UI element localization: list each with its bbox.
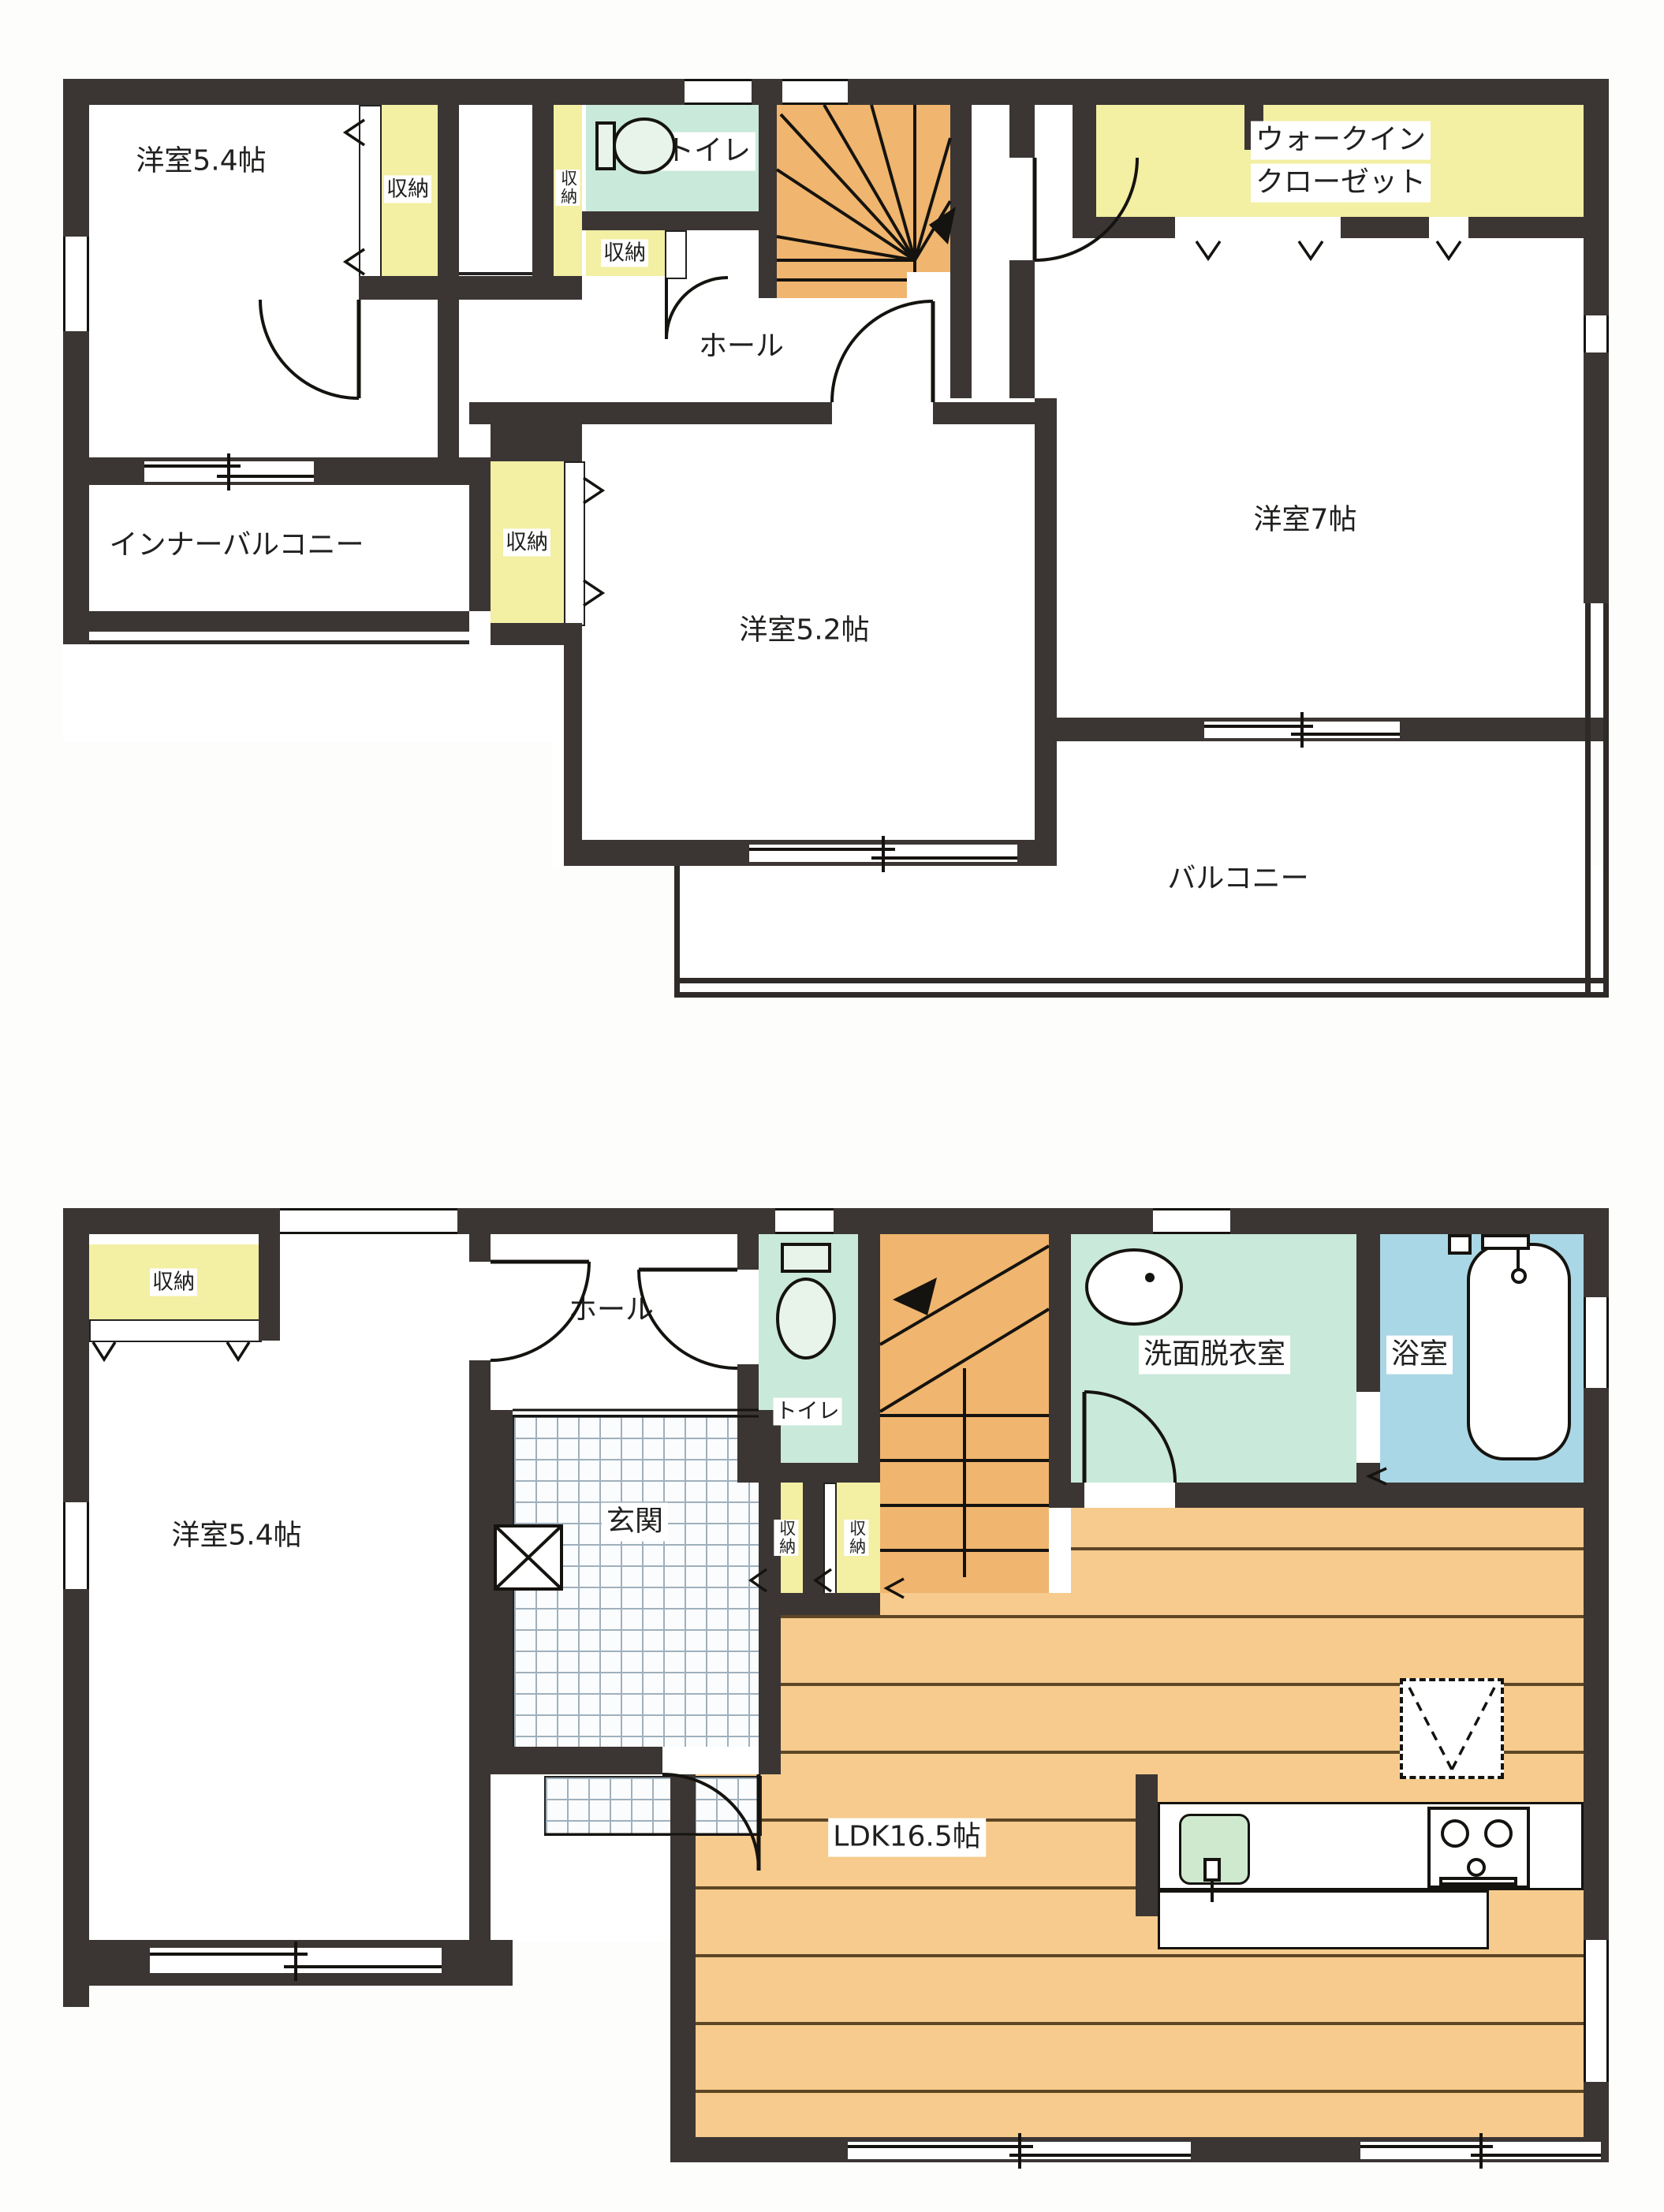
lower-window-54-icon — [150, 1942, 442, 1981]
shoebox-icon — [495, 1526, 562, 1589]
lower-toilet-icon — [778, 1244, 834, 1358]
upper-window-7-balcony-icon — [1204, 712, 1400, 748]
upper-52-door-icon — [832, 301, 933, 402]
refrigerator-icon-lines — [1409, 1688, 1494, 1770]
genkan-step-lines — [513, 1410, 759, 1834]
stove-icon — [1429, 1808, 1528, 1887]
washbasin-icon — [1087, 1250, 1181, 1324]
faucet-icon — [1205, 1859, 1219, 1902]
upper-window-52-balcony-icon — [749, 836, 1017, 872]
upper-window-54-balcony-icon — [144, 453, 314, 491]
lower-closet-gh-arrows — [751, 1569, 831, 1591]
lower-toilet-door-icon — [639, 1270, 737, 1368]
ldk-window2-icon — [1360, 2133, 1601, 2169]
lower-closet-f-arrows — [93, 1342, 249, 1360]
lower-54-door-icon — [491, 1262, 589, 1360]
lower-stairs-icon — [880, 1246, 1049, 1598]
upper-toilet-icon — [597, 119, 674, 173]
upper-wic-arrows — [1196, 241, 1461, 259]
upper-7-door-icon — [1035, 158, 1137, 260]
entrance-door-icon — [662, 1774, 759, 1871]
bathtub-icon — [1449, 1236, 1569, 1459]
upper-closet-c-door-icon — [666, 278, 728, 339]
upper-closet-a-arrows — [345, 120, 364, 274]
ldk-window1-icon — [848, 2133, 1191, 2169]
washroom-door-icon — [1084, 1392, 1175, 1483]
upper-closet-d-arrows — [584, 478, 603, 606]
plan-symbols-layer — [0, 0, 1664, 2212]
floor-plan-sheet: 洋室5.4帖 収納 収納 トイレ 収納 ウォークイン クローゼット ホール 収納… — [0, 0, 1664, 2212]
upper-stairs-icon — [777, 105, 956, 298]
upper-54-door-icon — [260, 300, 359, 398]
bath-door-arrow — [1369, 1468, 1386, 1484]
